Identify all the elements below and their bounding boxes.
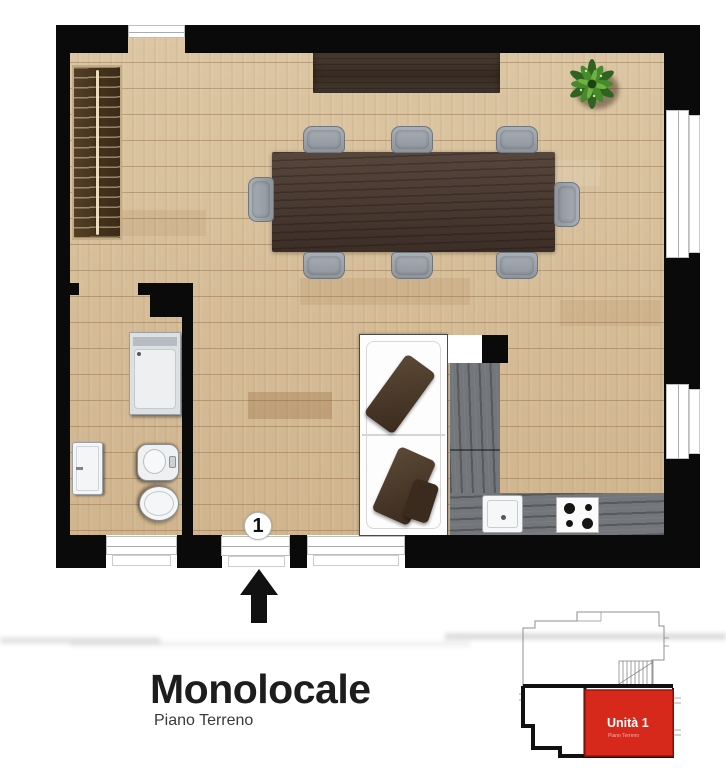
faucet [76,467,83,470]
sofa [359,334,448,536]
wall-bottom [405,535,700,568]
wall-bottom [290,535,307,568]
window-right-lower [666,384,689,459]
dining-chair [248,177,274,222]
burner [566,520,573,527]
wall-bottom [177,535,222,568]
kitchen-counter-vertical [450,363,500,495]
shower-drain [137,352,141,356]
window-sill [313,555,399,566]
bathroom-wall [150,295,193,317]
window-sill [689,389,700,454]
wall-bottom [56,535,106,568]
minimap-unit-label: Unità 1 [607,716,649,730]
floor-plank-shade [300,278,470,305]
dining-chair [303,126,345,153]
bathroom-wall [138,283,193,295]
dining-chair [496,126,538,153]
faucet [169,456,176,468]
dining-table [272,152,555,252]
entrance-threshold [228,556,285,567]
sofa-seat-divider [362,434,445,436]
minimap: Unità 1 Piano Terreno [513,598,726,768]
minimap-stairs [619,661,653,685]
entrance-marker: 1 [244,512,272,540]
burner [585,504,592,511]
window-sill [689,115,700,253]
bidet [137,444,179,481]
wall-left [56,25,70,568]
stove-cooktop [556,497,599,533]
minimap-window-ticks [673,698,681,735]
floorplan-page: 1 Monolocale Piano Terreno Unità 1 [0,0,726,768]
wall-niche-white [448,335,482,363]
floor-plank-shade [248,392,332,419]
window-bottom-bathroom [106,536,177,555]
shower-basin [134,349,176,409]
dining-chair [391,252,433,279]
sideboard-cabinet [313,52,500,93]
potted-plant [562,54,624,116]
minimap-unit-sublabel: Piano Terreno [608,733,639,739]
page-title: Monolocale [150,666,371,713]
kitchen-wall-column [482,335,508,363]
page-subtitle: Piano Terreno [154,712,253,730]
window-right-upper [666,110,689,258]
scan-smudge [70,641,470,647]
dining-chair [391,126,433,153]
sink-drain [501,515,506,520]
dining-chair [303,252,345,279]
entrance-arrow-icon [238,569,280,625]
window-top [128,25,185,38]
burner [564,503,575,514]
bathroom-wall-stub [68,283,79,295]
bathroom-sink [72,442,103,495]
dining-chair [496,252,538,279]
wardrobe [72,65,122,240]
window-bottom-living [307,536,405,555]
shower-ledge [133,337,177,346]
window-sill [112,555,171,566]
toilet [139,486,179,521]
counter-seam [450,449,500,451]
entrance-marker-number: 1 [252,515,263,538]
plant-icon [562,54,624,116]
bathroom-wall-vertical [182,317,193,537]
wall-top-right-block [664,25,700,113]
dining-chair [554,182,580,227]
kitchen-sink [482,495,523,533]
burner [582,518,593,529]
floor-plank-shade [560,300,660,326]
shower-tray [129,332,181,415]
wall-top [185,25,664,53]
